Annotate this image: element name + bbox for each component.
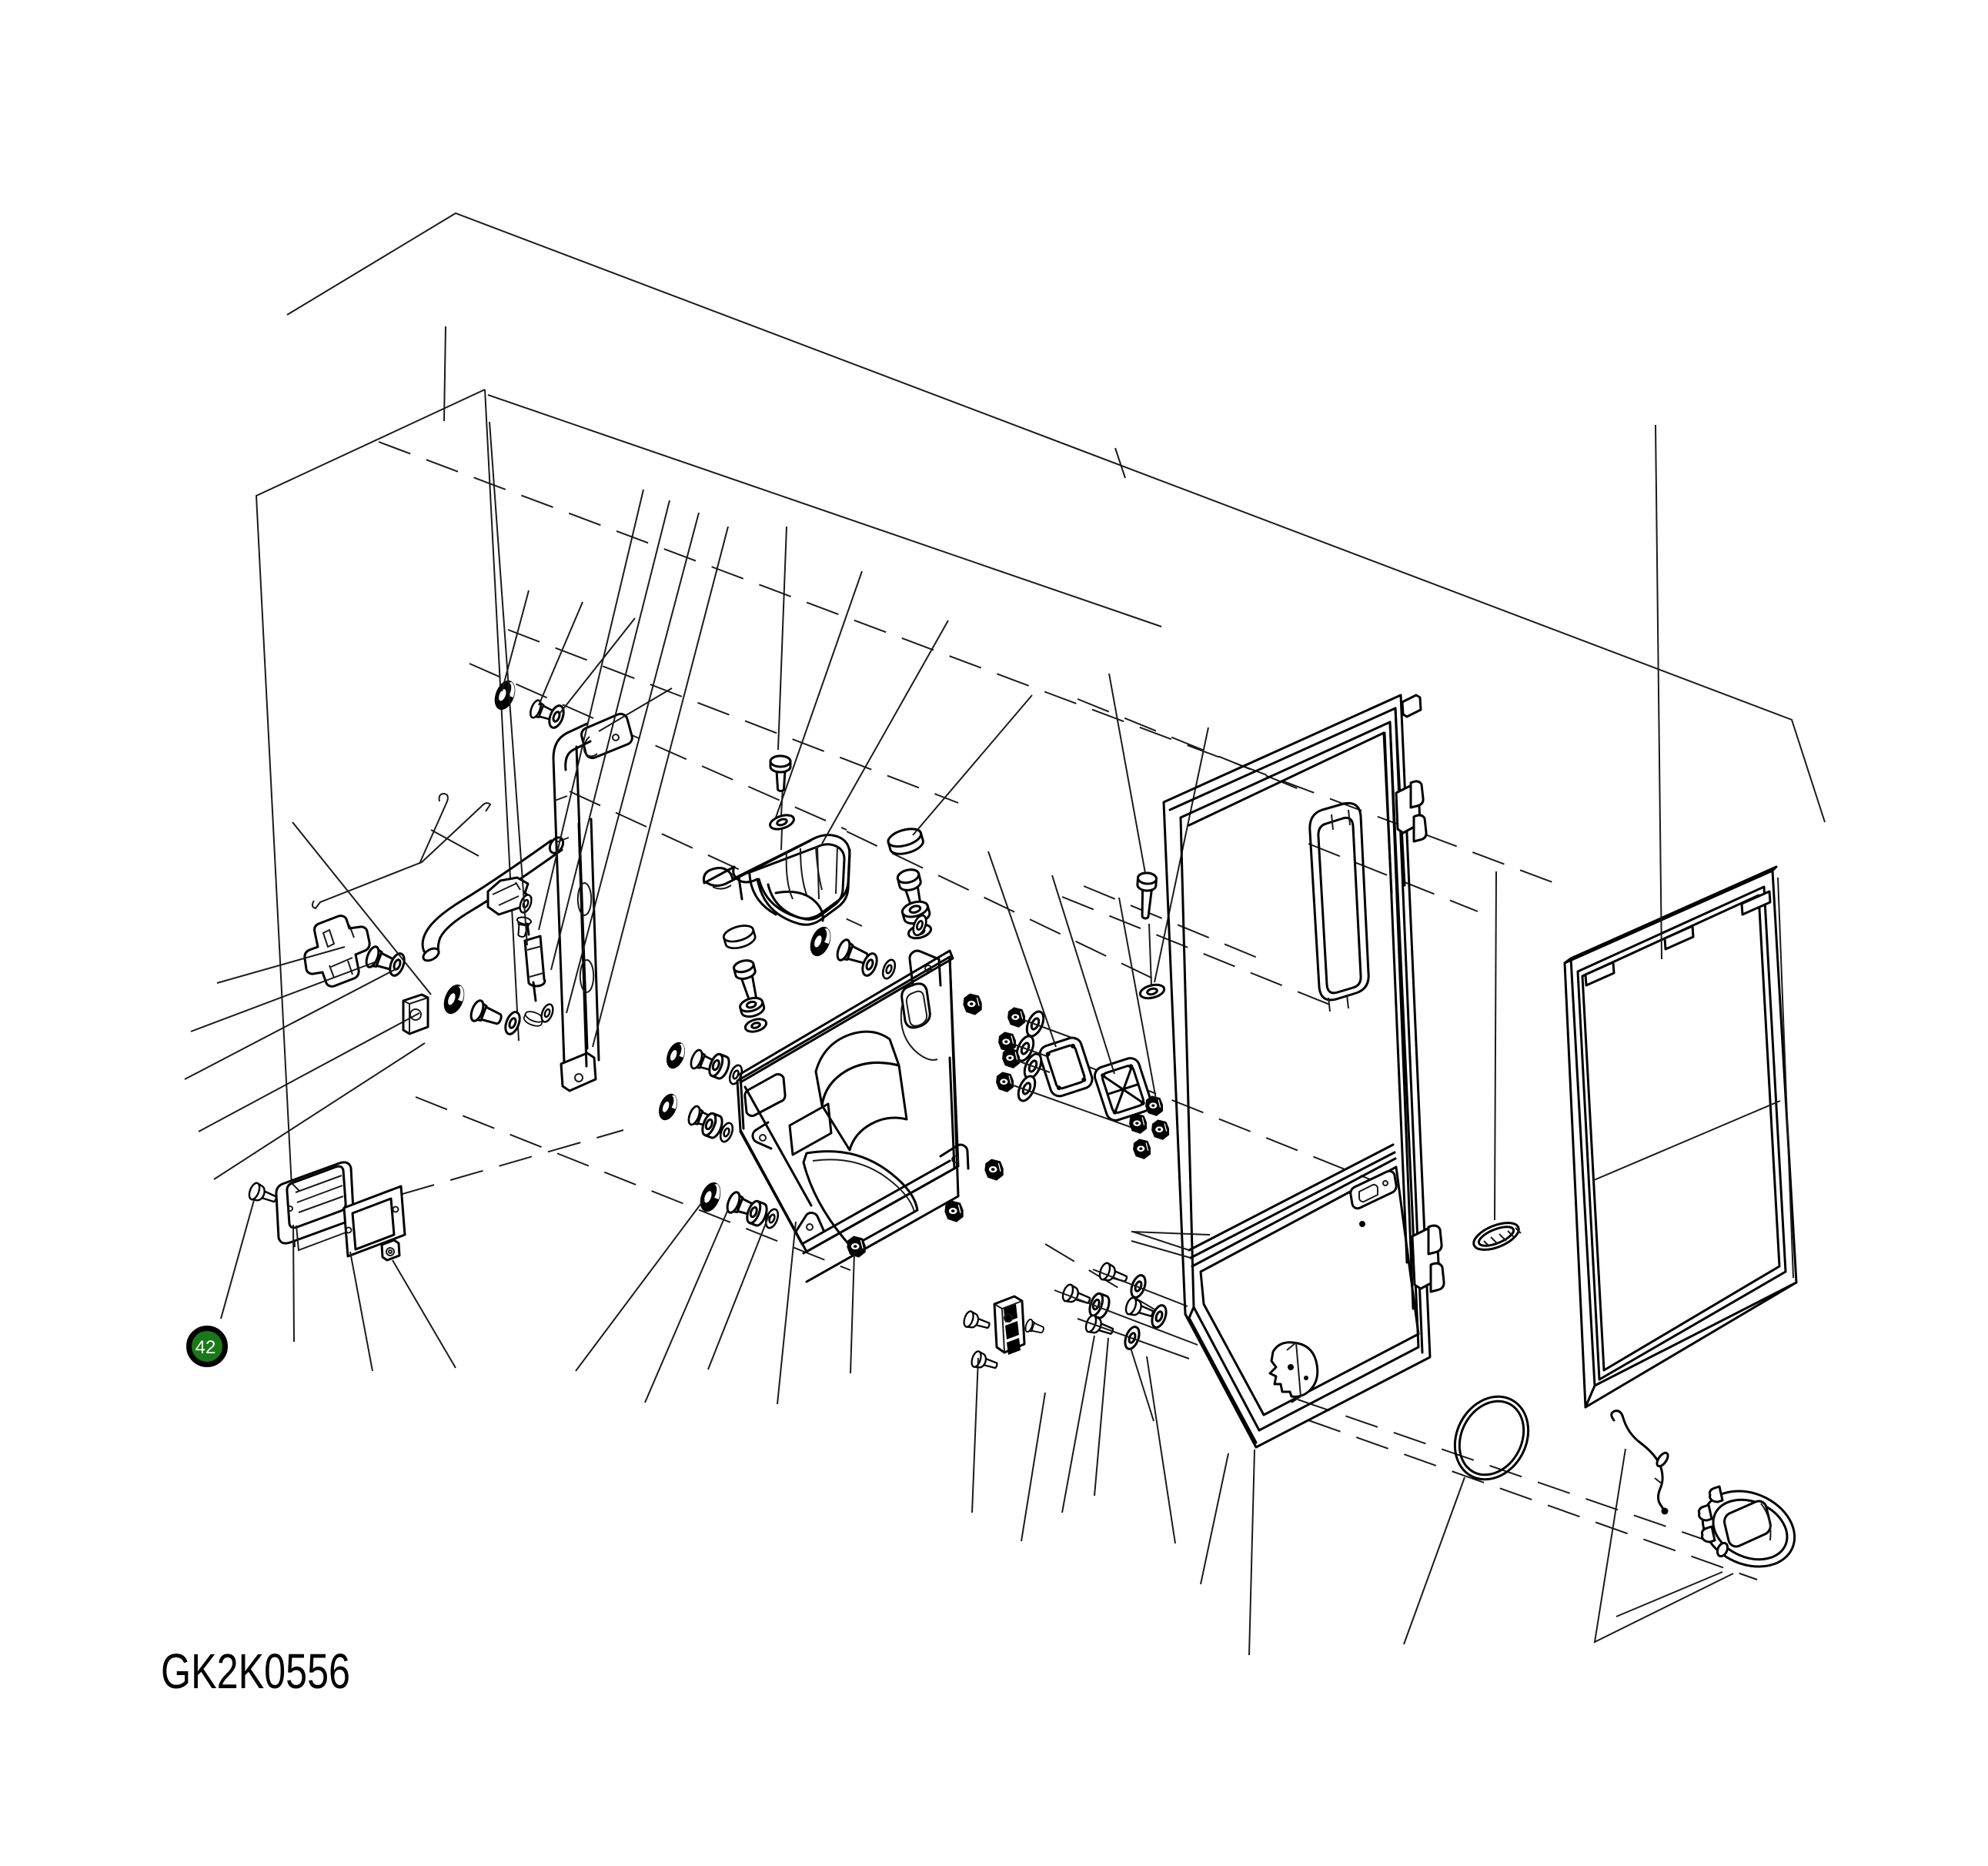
svg-text:42: 42 <box>195 1337 216 1358</box>
svg-text:GK2K0556: GK2K0556 <box>161 1644 350 1699</box>
